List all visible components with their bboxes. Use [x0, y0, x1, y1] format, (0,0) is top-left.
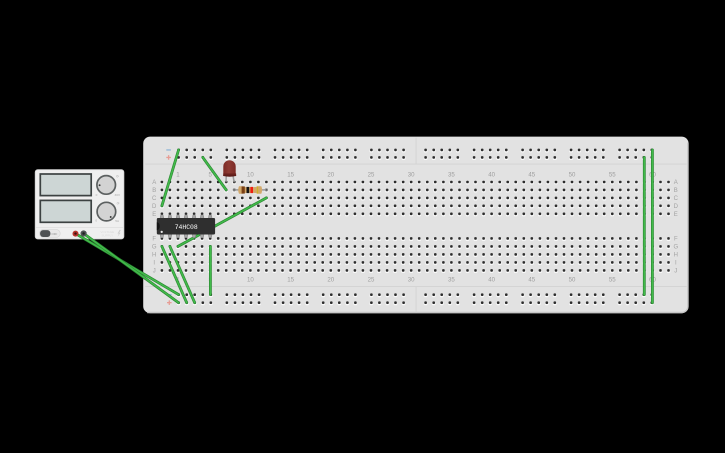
- svg-text:15: 15: [287, 277, 294, 284]
- svg-text:A: A: [674, 180, 678, 186]
- svg-text:55: 55: [609, 172, 616, 179]
- svg-text:G: G: [673, 245, 678, 251]
- svg-text:D: D: [674, 204, 679, 210]
- svg-text:45: 45: [528, 172, 535, 179]
- svg-text:E: E: [152, 212, 156, 218]
- svg-text:OFF: OFF: [52, 232, 58, 236]
- svg-text:20: 20: [327, 277, 334, 284]
- svg-text:45: 45: [528, 277, 535, 284]
- svg-text:E: E: [674, 212, 678, 218]
- svg-text:55: 55: [609, 277, 616, 284]
- svg-text:40: 40: [488, 172, 495, 179]
- svg-text:5: 5: [209, 172, 213, 179]
- svg-text:35: 35: [448, 277, 455, 284]
- svg-text:35: 35: [448, 172, 455, 179]
- svg-text:10: 10: [247, 277, 254, 284]
- svg-text:0: 0: [96, 193, 98, 197]
- svg-text:⟳: ⟳: [116, 175, 119, 179]
- svg-text:H: H: [674, 253, 678, 259]
- svg-text:D: D: [152, 204, 157, 210]
- svg-text:30: 30: [408, 172, 415, 179]
- svg-text:SUPPLY: SUPPLY: [101, 233, 113, 237]
- svg-text:25: 25: [368, 277, 375, 284]
- svg-text:50: 50: [569, 277, 576, 284]
- svg-text:25: 25: [368, 172, 375, 179]
- svg-text:B: B: [674, 188, 678, 194]
- svg-text:B: B: [152, 188, 156, 194]
- svg-text:⟳: ⟳: [117, 202, 120, 206]
- svg-text:A: A: [152, 180, 156, 186]
- svg-text:J: J: [153, 269, 156, 275]
- svg-text:74HC08: 74HC08: [175, 224, 198, 231]
- svg-text:10: 10: [247, 172, 254, 179]
- svg-text:40: 40: [488, 277, 495, 284]
- svg-text:F: F: [152, 237, 156, 243]
- svg-text:C: C: [152, 196, 157, 202]
- svg-text:15: 15: [287, 172, 294, 179]
- svg-text:H: H: [152, 253, 156, 259]
- svg-text:20: 20: [327, 172, 334, 179]
- svg-text:J: J: [674, 269, 677, 275]
- svg-text:C: C: [674, 196, 679, 202]
- svg-text:G: G: [152, 245, 157, 251]
- svg-text:F: F: [674, 237, 678, 243]
- svg-text:50: 50: [569, 172, 576, 179]
- svg-text:0: 0: [95, 219, 97, 223]
- svg-text:30: 30: [408, 277, 415, 284]
- svg-text:30V: 30V: [115, 193, 121, 197]
